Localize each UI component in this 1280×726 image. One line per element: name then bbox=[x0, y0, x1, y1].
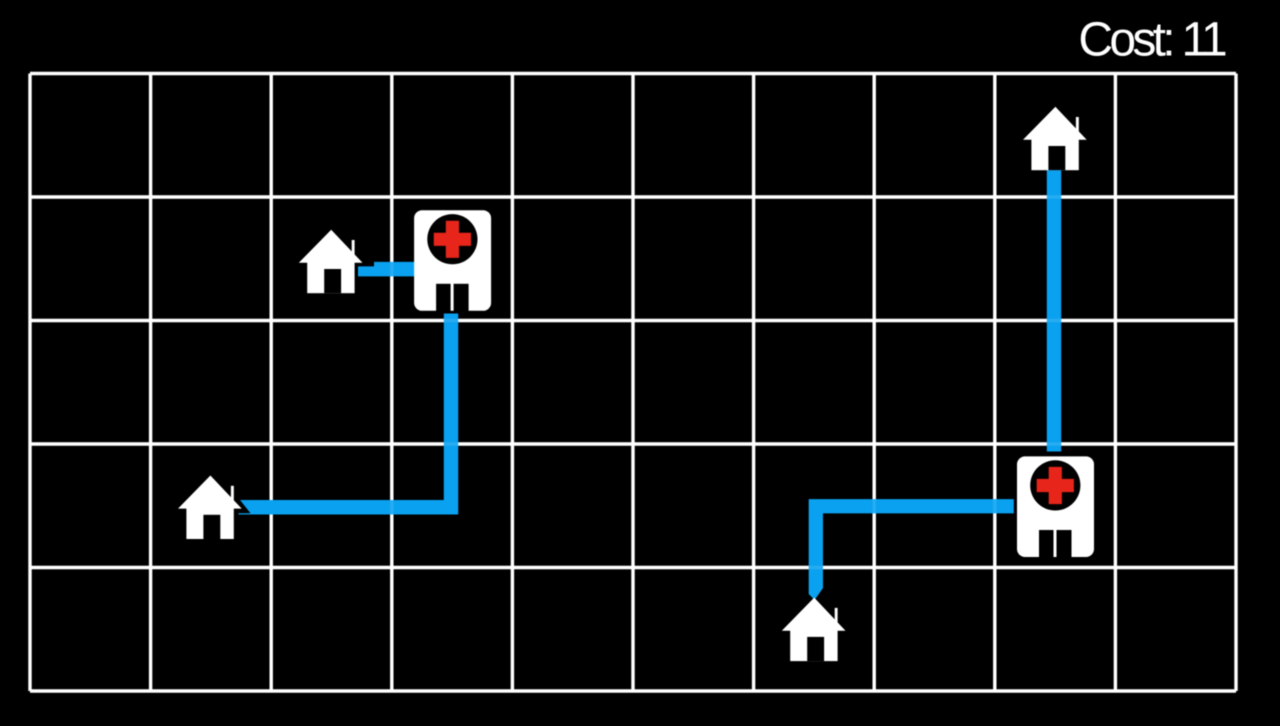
svg-text:Cost: 11: Cost: 11 bbox=[1078, 14, 1226, 67]
